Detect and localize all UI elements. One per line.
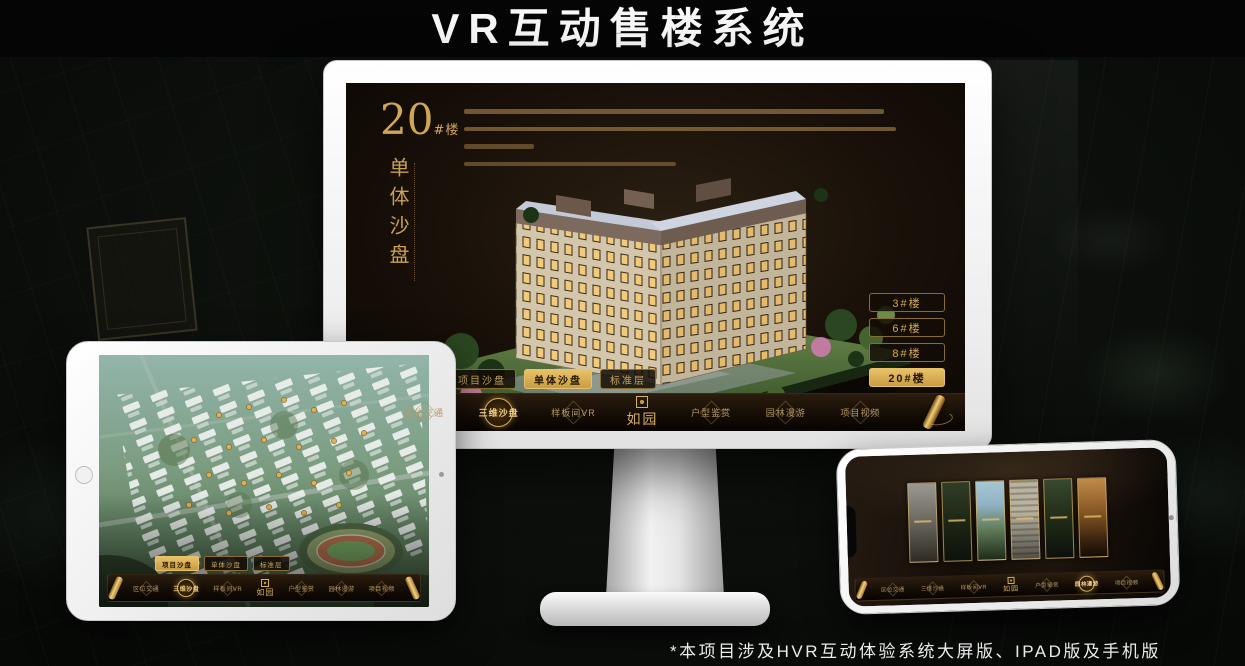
nav-item-project-video[interactable]: 项目视频 [838, 394, 882, 431]
nav-item-label: 项目视频 [1115, 578, 1139, 587]
nav-item-label: 区位交通 [404, 406, 444, 419]
nav-item-project-video[interactable]: 项目视频 [369, 575, 395, 601]
scroll-handle-left[interactable] [107, 576, 123, 601]
subtab-project-sandtable[interactable]: 项目沙盘 [155, 556, 199, 571]
nav-item-label: 区位交通 [881, 585, 905, 594]
monitor-stand-neck [606, 447, 724, 597]
intro-text-line [464, 127, 896, 132]
nav-item-3d-sandtable[interactable]: 三维沙盘 [477, 394, 521, 431]
nav-item-location[interactable]: 区位交通 [133, 575, 159, 601]
nav-item-label: 户型鉴赏 [1035, 580, 1059, 589]
building-button-20[interactable]: 20#楼 [869, 368, 945, 387]
scene-card[interactable] [1077, 477, 1108, 558]
nav-item-label: 园林漫游 [1075, 579, 1099, 588]
nav-item-label: 样板间VR [551, 406, 596, 419]
card-label-mark [1017, 518, 1033, 520]
nav-item-3d-sandtable[interactable]: 三维沙盘 [173, 575, 199, 601]
subtab-standard-floor[interactable]: 标准层 [253, 556, 290, 571]
card-label-mark [949, 520, 965, 522]
nav-item-model-room-vr[interactable]: 样板间VR [551, 394, 596, 431]
scene-card[interactable] [975, 480, 1006, 561]
seal-icon [636, 396, 648, 408]
nav-item-floorplan[interactable]: 户型鉴赏 [289, 575, 315, 601]
background-plaque-inner [97, 228, 186, 330]
stage: VR互动售楼系统 20#楼 单体沙盘 [0, 0, 1245, 666]
nav-item-label: 三维沙盘 [479, 406, 519, 419]
seal-icon [261, 579, 269, 587]
nav-item-label: 户型鉴赏 [289, 584, 315, 593]
phone-notch [846, 506, 857, 558]
card-label-mark [1085, 516, 1101, 518]
tablet-nav-bar: 区位交通 三维沙盘 样板间VR 如园 户型鉴赏 园林漫游 项目视频 [107, 574, 421, 602]
background-city-strip [988, 60, 1078, 390]
logo-text: 如园 [626, 409, 658, 429]
ruyuan-logo[interactable]: 如园 [256, 579, 274, 598]
building-button-8[interactable]: 8#楼 [869, 343, 945, 362]
nav-item-model-room-vr[interactable]: 样板间VR [960, 576, 987, 598]
logo-text: 如园 [1003, 584, 1019, 594]
tablet-home-button[interactable] [75, 466, 93, 484]
scene-card-gallery [907, 477, 1108, 563]
nav-item-label: 样板间VR [213, 584, 242, 593]
nav-item-label: 区位交通 [133, 584, 159, 593]
building-selector: 3#楼 6#楼 8#楼 20#楼 [869, 293, 945, 387]
tablet-camera-dot [439, 472, 444, 477]
phone-screen: 区位交通 三维沙盘 样板间VR 如园 户型鉴赏 园林漫游 项目视频 [845, 447, 1171, 606]
nav-item-floorplan[interactable]: 户型鉴赏 [1035, 574, 1059, 596]
nav-item-project-video[interactable]: 项目视频 [1114, 571, 1138, 593]
page-title: VR互动售楼系统 [0, 0, 1245, 57]
monitor-subtabs: 项目沙盘 单体沙盘 标准层 [448, 369, 656, 389]
nav-item-label: 三维沙盘 [921, 583, 945, 592]
nav-item-label: 户型鉴赏 [691, 406, 731, 419]
scene-card[interactable] [941, 481, 972, 562]
monitor-stand-base [540, 592, 770, 626]
nav-item-location[interactable]: 区位交通 [881, 578, 905, 600]
subtab-single-sandtable[interactable]: 单体沙盘 [204, 556, 248, 571]
nav-item-label: 项目视频 [840, 406, 880, 419]
scene-card[interactable] [1009, 479, 1040, 560]
subtab-single-sandtable[interactable]: 单体沙盘 [524, 369, 592, 389]
background-plaque [86, 217, 197, 341]
nav-item-model-room-vr[interactable]: 样板间VR [213, 575, 242, 601]
nav-item-label: 园林漫游 [766, 406, 806, 419]
scroll-handle-left[interactable] [855, 580, 868, 600]
building-button-3[interactable]: 3#楼 [869, 293, 945, 312]
ruyuan-logo[interactable]: 如园 [626, 396, 658, 429]
nav-item-label: 项目视频 [369, 584, 395, 593]
scroll-icon[interactable] [913, 398, 955, 428]
nav-item-label: 三维沙盘 [173, 584, 199, 593]
phone: 区位交通 三维沙盘 样板间VR 如园 户型鉴赏 园林漫游 项目视频 [836, 439, 1181, 615]
ruyuan-logo[interactable]: 如园 [1003, 577, 1019, 594]
phone-nav-bar: 区位交通 三维沙盘 样板间VR 如园 户型鉴赏 园林漫游 项目视频 [854, 569, 1165, 601]
building-button-6[interactable]: 6#楼 [869, 318, 945, 337]
nav-item-label: 园林漫游 [329, 584, 355, 593]
subtab-project-sandtable[interactable]: 项目沙盘 [448, 369, 516, 389]
nav-item-label: 样板间VR [961, 582, 987, 591]
scene-card[interactable] [907, 482, 938, 563]
card-label-mark [1051, 517, 1067, 519]
nav-item-3d-sandtable[interactable]: 三维沙盘 [921, 577, 945, 599]
card-label-mark [915, 521, 931, 523]
nav-item-garden-tour[interactable]: 园林漫游 [1075, 572, 1099, 594]
scroll-handle-right[interactable] [1151, 571, 1165, 591]
tablet-screen: 项目沙盘 单体沙盘 标准层 区位交通 三维沙盘 样板间VR 如园 户型鉴赏 园林… [99, 355, 429, 607]
nav-item-floorplan[interactable]: 户型鉴赏 [689, 394, 733, 431]
footnote: *本项目涉及HVR互动体验系统大屏版、IPAD版及手机版 [670, 637, 1161, 662]
tablet-frame: 项目沙盘 单体沙盘 标准层 区位交通 三维沙盘 样板间VR 如园 户型鉴赏 园林… [66, 341, 456, 621]
nav-item-garden-tour[interactable]: 园林漫游 [764, 394, 808, 431]
scene-card[interactable] [1043, 478, 1074, 559]
subtab-standard-floor[interactable]: 标准层 [600, 369, 656, 389]
nav-item-garden-tour[interactable]: 园林漫游 [329, 575, 355, 601]
scroll-handle-right[interactable] [404, 576, 420, 601]
intro-text-line [464, 109, 884, 114]
logo-text: 如园 [256, 587, 274, 598]
card-label-mark [983, 519, 999, 521]
tablet-subtabs: 项目沙盘 单体沙盘 标准层 [155, 556, 290, 571]
phone-camera-dot [1169, 515, 1174, 520]
